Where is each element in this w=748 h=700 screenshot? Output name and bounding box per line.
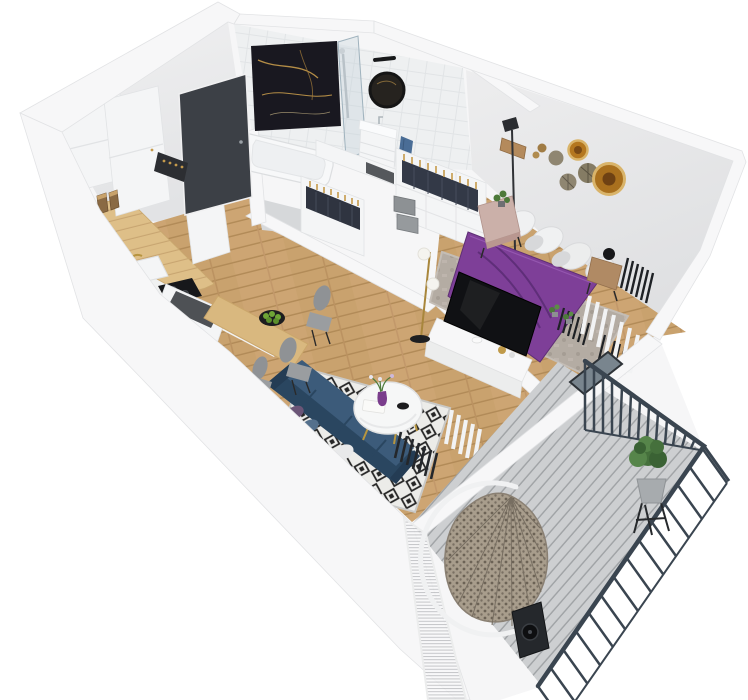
black-bowl <box>397 403 409 410</box>
door-handle <box>239 140 243 144</box>
marble-shower-wall <box>251 41 341 131</box>
cabinet-knob <box>151 149 154 152</box>
floor-plan-render <box>0 0 748 700</box>
shower-head <box>339 48 345 54</box>
candle <box>509 352 515 358</box>
entrance-door <box>179 74 252 215</box>
bathroom-mirror <box>370 73 404 107</box>
ball-lamp <box>603 248 615 260</box>
apartment <box>20 2 746 700</box>
remote <box>472 337 482 343</box>
floor-plan-stage <box>0 0 748 700</box>
plant-pot <box>637 479 666 503</box>
vase-purple <box>377 391 387 406</box>
railing-corner-post <box>704 446 729 481</box>
